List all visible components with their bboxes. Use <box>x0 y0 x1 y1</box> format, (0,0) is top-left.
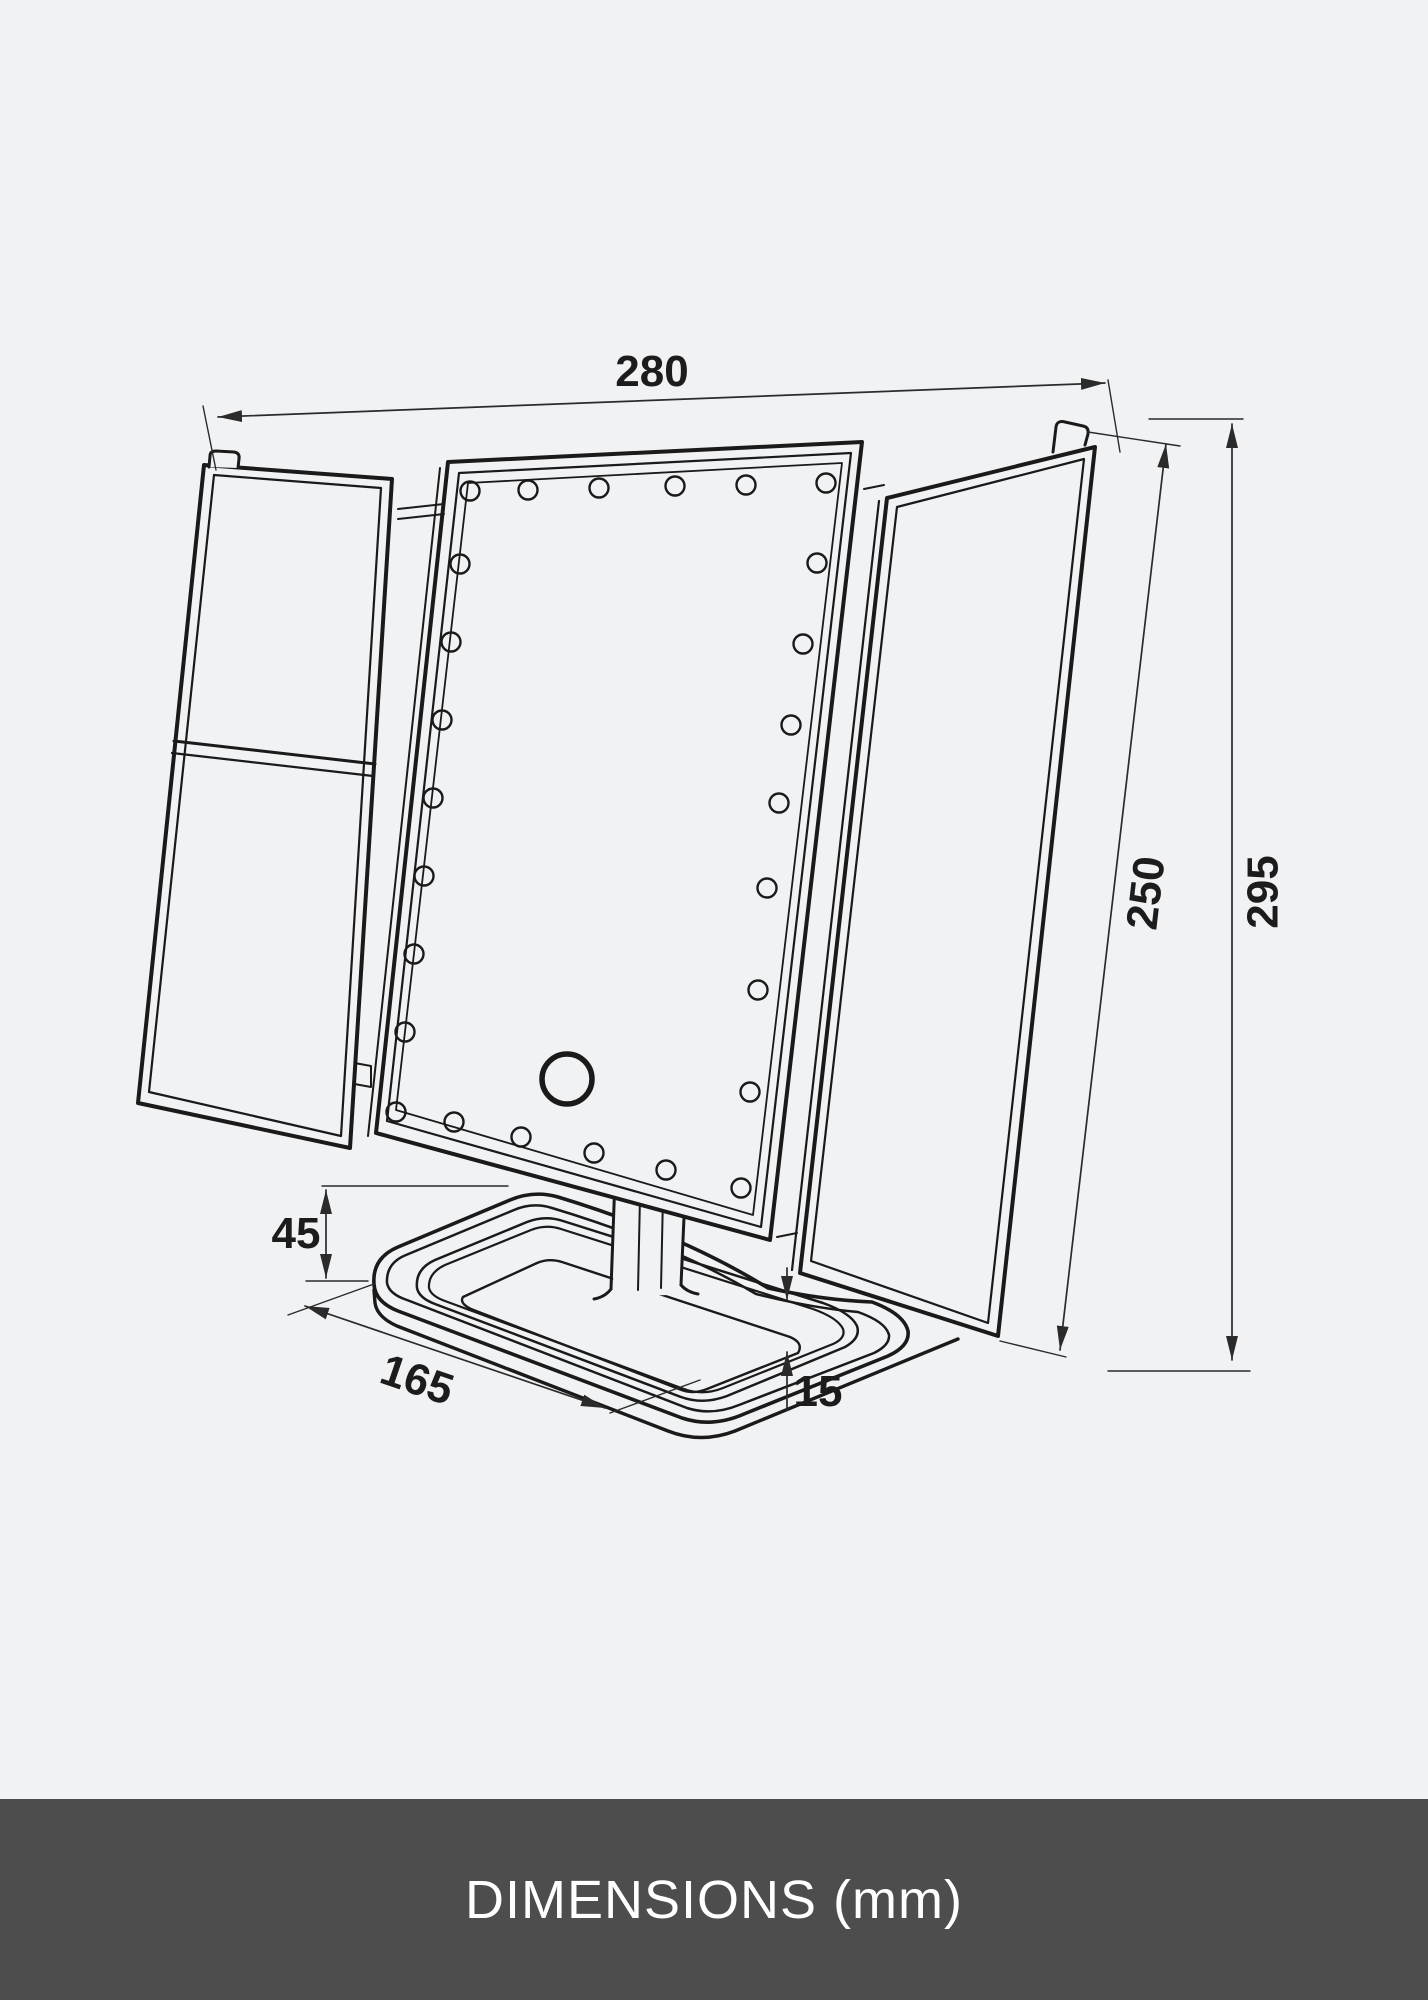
label-mirror-height: 250 <box>1117 854 1174 933</box>
label-stand-height: 45 <box>272 1209 321 1258</box>
extension-line <box>1108 380 1120 452</box>
hinge-tick-top-left-a <box>398 504 444 509</box>
caption-text: DIMENSIONS (mm) <box>465 1869 963 1931</box>
label-overall-width: 280 <box>615 347 688 396</box>
center-panel <box>349 442 862 1240</box>
hinge-tick-top-left-b <box>398 514 444 519</box>
left-panel <box>138 451 392 1148</box>
caption-bar: DIMENSIONS (mm) <box>0 1799 1428 2000</box>
hinge-tick-bottom-right <box>777 1233 797 1237</box>
dimension-diagram: 280 250 295 45 165 15 <box>0 0 1428 2000</box>
screenshot-root: 280 250 295 45 165 15 DIMENSIONS (mm) <box>0 0 1428 2000</box>
left-panel-outline <box>138 465 392 1148</box>
hinge-tick-top-right <box>864 485 884 489</box>
dim-line-base-depth <box>305 1306 605 1408</box>
label-base-thickness: 15 <box>794 1367 843 1416</box>
extension-line <box>1088 432 1180 446</box>
right-panel-top-tab <box>1053 422 1088 452</box>
label-base-depth: 165 <box>374 1345 459 1415</box>
extension-line <box>1000 1341 1066 1357</box>
extension-line <box>288 1284 374 1315</box>
label-overall-height: 295 <box>1239 855 1288 928</box>
